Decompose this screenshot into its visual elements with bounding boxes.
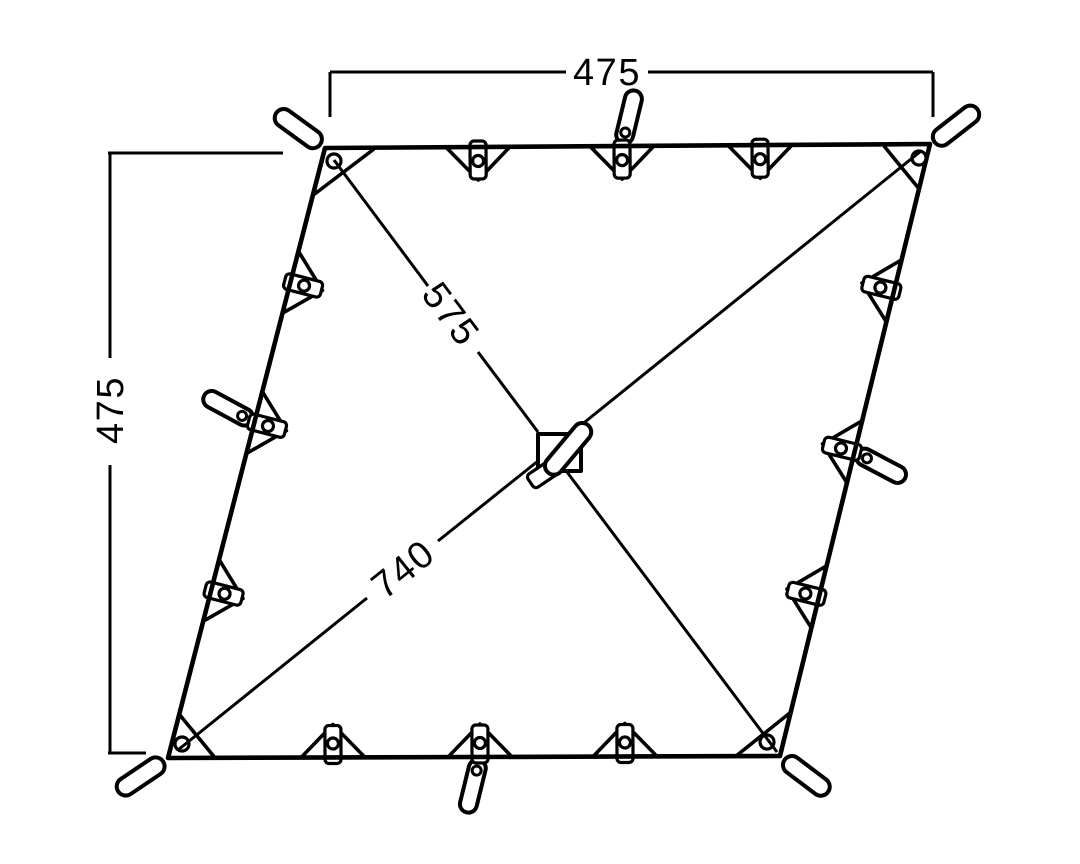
dimension-diagonal-740: 740 bbox=[364, 532, 443, 607]
diagonal-575-segment-2 bbox=[478, 352, 538, 432]
upper-diagonal-label: 575 bbox=[413, 275, 487, 355]
top-left-corner-loop bbox=[271, 105, 325, 151]
tarp-dimension-diagram: 475 475 575 740 bbox=[0, 0, 1080, 864]
top-right-corner-loop bbox=[929, 102, 983, 149]
left-edge-loop-tab bbox=[191, 377, 294, 461]
right-edge-loop-tab bbox=[815, 413, 918, 497]
lower-diagonal-label: 740 bbox=[364, 532, 443, 607]
bottom-left-corner-loop bbox=[113, 754, 168, 799]
dimension-diagonal-575: 575 bbox=[413, 275, 487, 355]
diagonal-575-segment-1 bbox=[334, 160, 428, 286]
top-width-label: 475 bbox=[573, 52, 641, 94]
diagonal-segment-to-bottom-right bbox=[567, 472, 777, 752]
diagram-stage: 475 475 575 740 bbox=[0, 0, 1080, 864]
bottom-right-corner-loop bbox=[779, 752, 833, 799]
top-edge-loop-tab bbox=[590, 89, 655, 180]
diagonal-740-segment-2 bbox=[438, 461, 538, 541]
dimension-left-height: 475 bbox=[90, 153, 283, 753]
left-height-label: 475 bbox=[90, 376, 132, 444]
bottom-edge-loop-tab bbox=[448, 724, 512, 815]
